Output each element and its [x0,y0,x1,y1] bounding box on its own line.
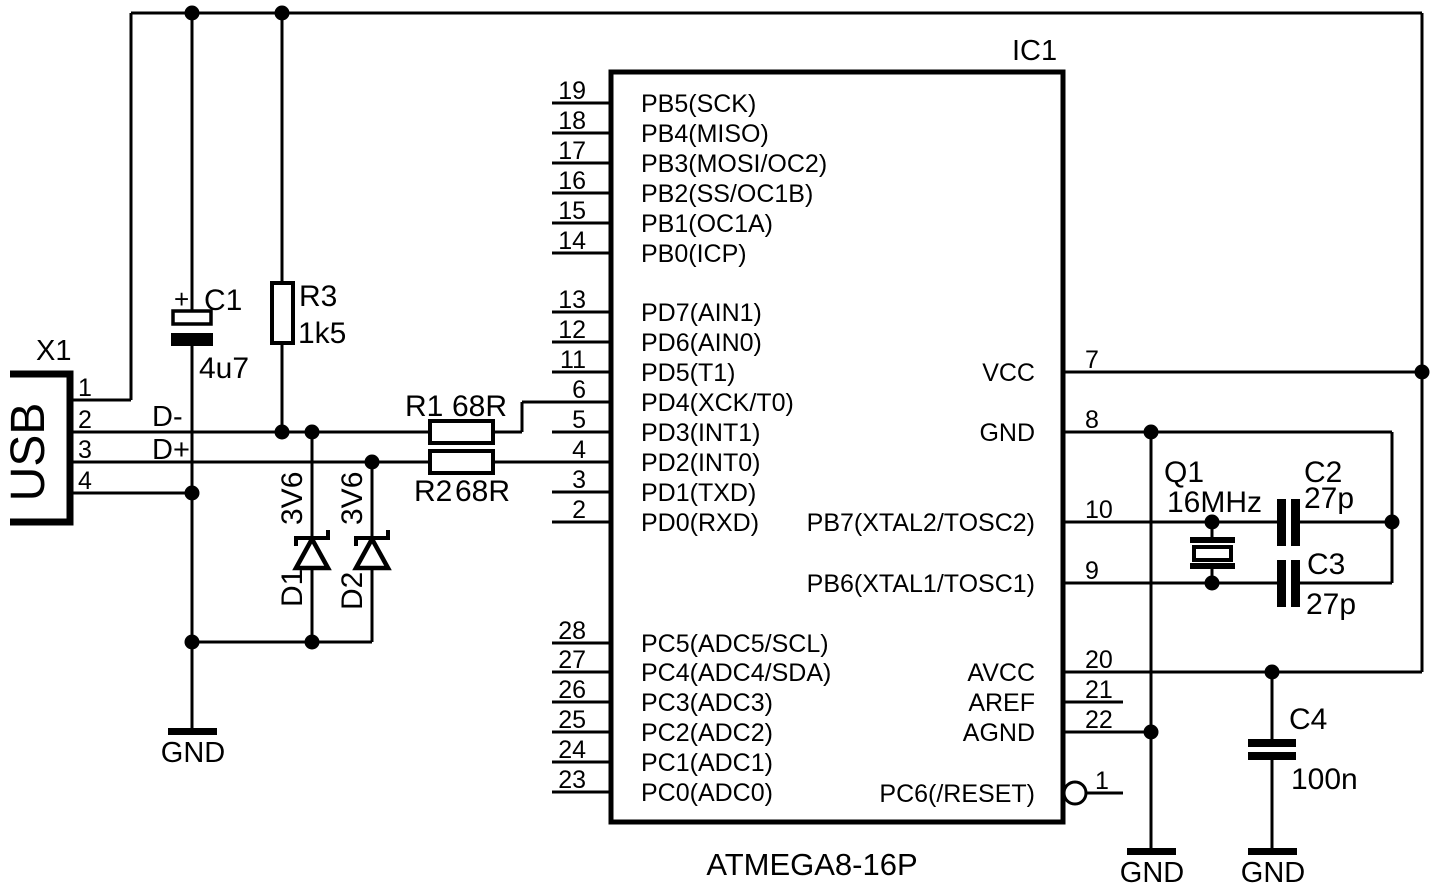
junction-dot [1265,665,1280,680]
ground-symbol-agnd: GND [1120,848,1184,889]
pin-number: 28 [558,617,586,645]
usb-pin1-number: 1 [78,374,92,402]
c2-plate-left [1277,499,1286,546]
usb-ref-label: X1 [36,335,71,367]
pin-name: AREF [968,689,1035,717]
pin-name: AGND [963,719,1035,747]
pin-number: 8 [1085,406,1099,434]
junction-dot [1144,425,1159,440]
pin-number: 27 [558,646,586,674]
junction-dot [1415,365,1430,380]
r3-value-label: 1k5 [298,317,346,350]
junction-dot [1205,576,1220,591]
pin-name: PD0(RXD) [641,509,759,537]
r1-ref-label: R1 [405,390,443,423]
pin-number: 10 [1085,496,1113,524]
pin-number: 16 [558,167,586,195]
pin-name: PC4(ADC4/SDA) [641,659,831,687]
pin-number: 11 [560,346,586,374]
pin-name: PD1(TXD) [641,479,756,507]
c4-value-label: 100n [1291,763,1358,796]
pin-name: PD7(AIN1) [641,299,762,327]
q1-ref-label: Q1 [1164,456,1204,489]
pin-number: 20 [1085,646,1113,674]
c4-plate-top [1248,739,1296,747]
crystal-q1: Q1 16MHz [1164,456,1262,569]
ground-label: GND [1241,857,1305,889]
pin-number: 24 [558,736,586,764]
pin-number: 17 [558,137,586,165]
c2-plate-right [1291,499,1300,546]
junction-dot [305,635,320,650]
pin-number: 14 [558,227,586,255]
pin-name: PC6(/RESET) [879,780,1035,808]
r3-ref-label: R3 [299,280,337,313]
schematic-drawing: X1 USB 1 2 3 4 D- D+ + C1 4u7 R3 1k5 R1 … [0,0,1435,892]
pin-name: PB5(SCK) [641,90,756,118]
pin-name: PC1(ADC1) [641,749,773,777]
pin-number: 25 [558,706,586,734]
junction-dot [1385,515,1400,530]
junction-dot [185,635,200,650]
r2-value-label: 68R [455,475,510,508]
ground-label: GND [1120,857,1184,889]
pin-name: PC2(ADC2) [641,719,773,747]
ground-label: GND [161,737,225,769]
usb-label: USB [2,403,55,502]
r1-value-label: 68R [452,390,507,423]
schematic-canvas: X1 USB 1 2 3 4 D- D+ + C1 4u7 R3 1k5 R1 … [0,0,1435,892]
pin-number: 3 [572,466,586,494]
pin-number: 12 [558,316,586,344]
ground-symbol-left: GND [161,728,225,769]
pin-number: 26 [558,676,586,704]
pin-name: AVCC [967,659,1035,687]
c1-value-label: 4u7 [199,352,249,385]
pin-number: 9 [1085,557,1099,585]
junction-dot [365,455,380,470]
zener-d2: 3V6 D2 [336,472,388,610]
q1-plate-top [1190,537,1235,543]
pin-name: PB1(OC1A) [641,210,773,238]
pin-name: PB6(XTAL1/TOSC1) [807,570,1035,598]
pin-name: PD6(AIN0) [641,329,762,357]
pin-number: 4 [572,436,586,464]
pin-name: PC0(ADC0) [641,779,773,807]
pin-name: PD3(INT1) [641,419,760,447]
ground-bar [1248,848,1297,855]
pin-name: PC5(ADC5/SCL) [641,630,829,658]
pin-name: PB0(ICP) [641,240,747,268]
pin-name: PB3(MOSI/OC2) [641,150,827,178]
ic1-right-pins: 7 VCC 8 GND 10 PB7(XTAL2/TOSC2) 9 PB6(XT… [807,346,1113,808]
resistor-r3: R3 1k5 [272,280,346,350]
pin-name: PD2(INT0) [641,449,760,477]
pin-number: 19 [558,77,586,105]
d1-value-label: 3V6 [276,472,309,525]
pin-name: PB2(SS/OC1B) [641,180,813,208]
signal-d-minus-label: D- [152,401,183,433]
ground-bar [1127,848,1176,855]
ground-symbol-c4: GND [1241,848,1305,889]
junction-dot [305,425,320,440]
q1-value-label: 16MHz [1167,486,1262,519]
ic1-part-label: ATMEGA8-16P [706,847,917,882]
pin-number: 6 [572,376,586,404]
q1-plate-bottom [1190,563,1235,569]
r2-ref-label: R2 [414,475,452,508]
pin-name: PC3(ADC3) [641,689,773,717]
junction-dot [275,425,290,440]
pin-name: PB7(XTAL2/TOSC2) [807,509,1035,537]
q1-body [1194,547,1231,560]
pin-name: PD5(T1) [641,359,735,387]
pin-number: 22 [1085,706,1113,734]
ic1-left-pins: 19 PB5(SCK) 18 PB4(MISO) 17 PB3(MOSI/OC2… [558,77,831,807]
d2-value-label: 3V6 [336,472,369,525]
d1-ref-label: D1 [276,569,309,607]
usb-pin4-number: 4 [78,467,92,495]
c2-value-label: 27p [1304,482,1354,515]
pin-number: 2 [572,496,586,524]
pin-name: GND [979,419,1035,447]
pin-number: 23 [558,766,586,794]
c1-plate-negative [171,333,213,346]
pin-number: 18 [558,107,586,135]
pin-name: PD4(XCK/T0) [641,389,794,417]
c4-ref-label: C4 [1289,703,1327,736]
signal-d-plus-label: D+ [152,434,190,466]
capacitor-c4: C4 100n [1248,703,1358,796]
c3-plate-left [1277,560,1286,607]
d2-ref-label: D2 [336,572,369,610]
pin-number: 15 [558,197,586,225]
pin-number: 7 [1085,346,1099,374]
d1-anode-triangle [296,539,328,568]
pin-name: VCC [982,359,1035,387]
capacitor-c2: C2 27p [1277,456,1354,546]
usb-pin2-number: 2 [78,406,92,434]
ground-bar [168,728,217,735]
ic1-ref-label: IC1 [1012,35,1057,67]
c4-plate-bottom [1248,752,1296,760]
junction-dot [1144,725,1159,740]
pin-number: 5 [572,406,586,434]
c3-ref-label: C3 [1307,548,1345,581]
pin-number: 1 [1095,767,1109,795]
usb-pin3-number: 3 [78,436,92,464]
junction-dot [185,6,200,21]
d2-anode-triangle [356,539,388,568]
pin-number: 21 [1085,676,1113,704]
capacitor-c1: + C1 4u7 [171,284,249,385]
r3-body [272,283,293,343]
pin-name: PB4(MISO) [641,120,769,148]
junction-dot [275,6,290,21]
resistor-r1: R1 68R [405,390,507,443]
c1-ref-label: C1 [204,284,242,317]
junction-dot [185,486,200,501]
c3-plate-right [1291,560,1300,607]
pin-number: 13 [558,286,586,314]
c3-value-label: 27p [1306,588,1356,621]
reset-inversion-bubble [1064,782,1086,804]
r2-body [430,451,493,473]
r1-body [430,421,493,443]
zener-d1: 3V6 D1 [276,472,328,607]
resistor-r2: R2 68R [414,451,510,508]
